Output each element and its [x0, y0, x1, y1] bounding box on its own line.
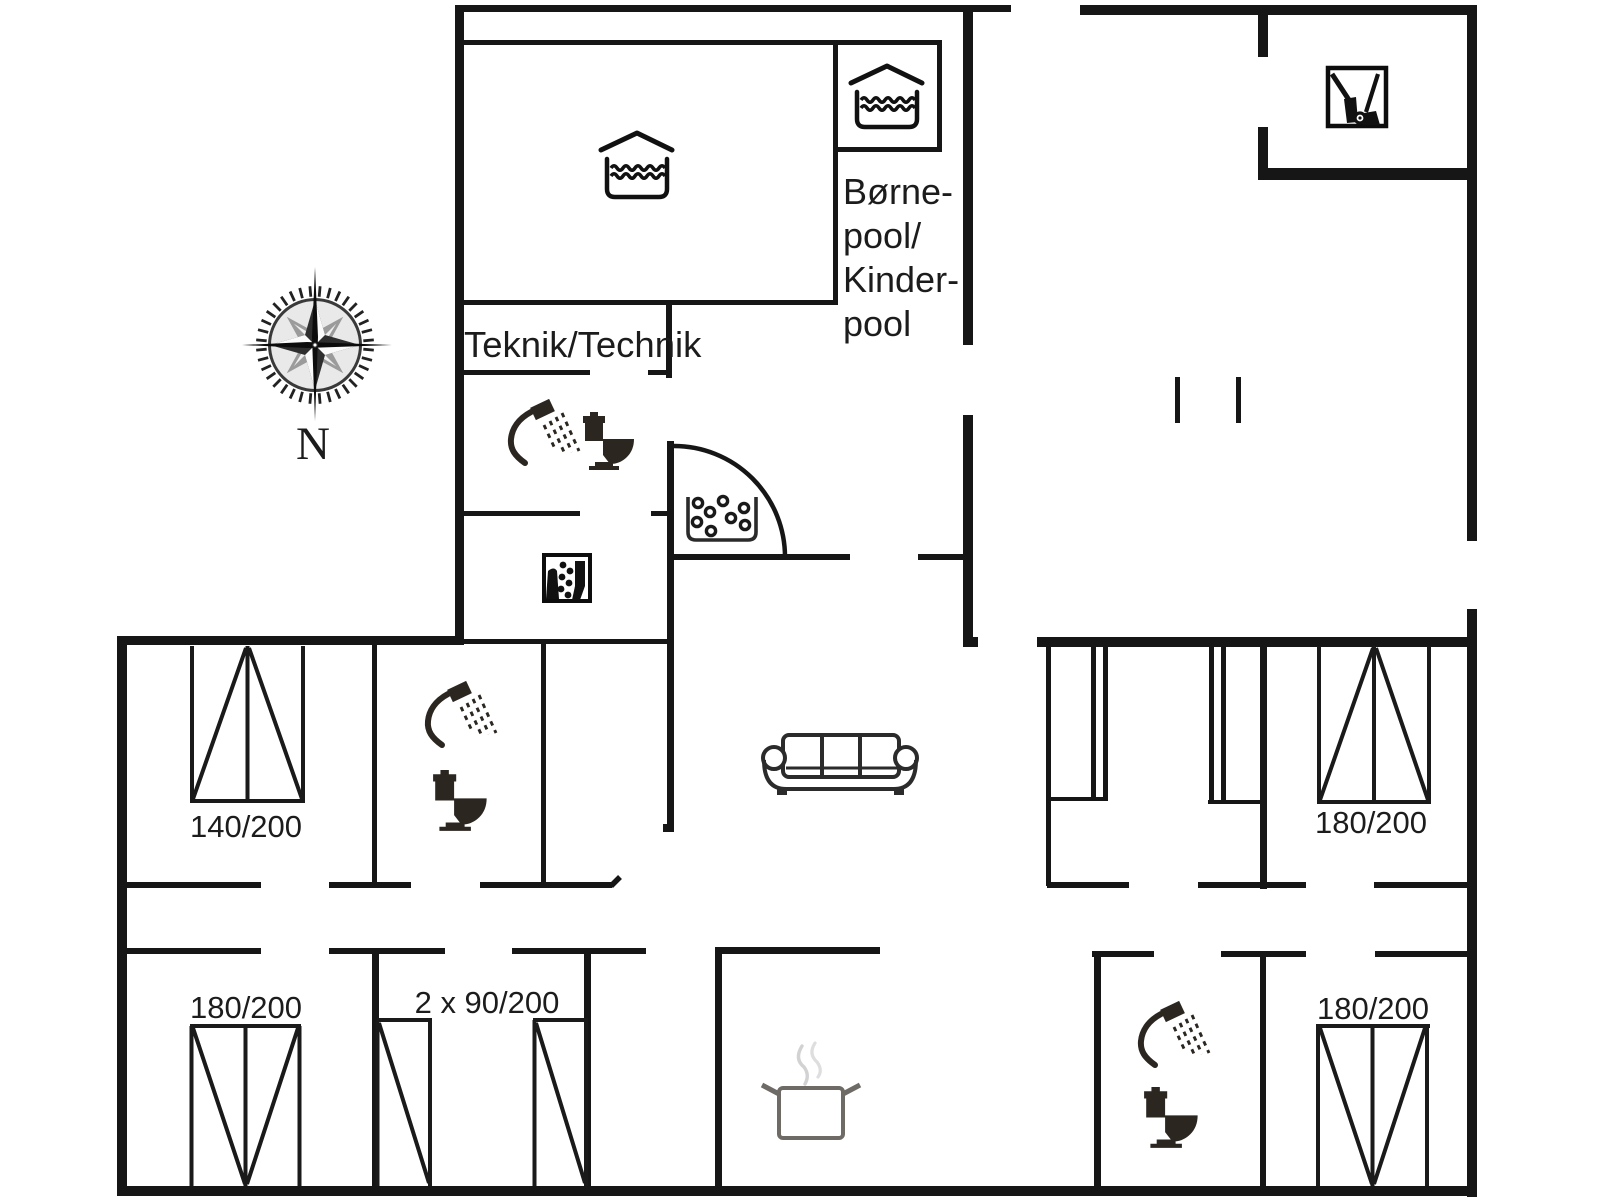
svg-text:2 x 90/200: 2 x 90/200: [415, 985, 560, 1020]
svg-text:Kinder-: Kinder-: [843, 259, 959, 300]
svg-text:pool: pool: [843, 303, 911, 344]
svg-text:140/200: 140/200: [190, 809, 302, 844]
svg-text:Børne-: Børne-: [843, 171, 953, 212]
svg-text:180/200: 180/200: [190, 990, 302, 1025]
svg-text:N: N: [296, 418, 330, 470]
svg-text:Teknik/Technik: Teknik/Technik: [464, 324, 702, 365]
svg-text:pool/: pool/: [843, 215, 921, 256]
svg-text:180/200: 180/200: [1317, 991, 1429, 1026]
svg-text:180/200: 180/200: [1315, 805, 1427, 840]
